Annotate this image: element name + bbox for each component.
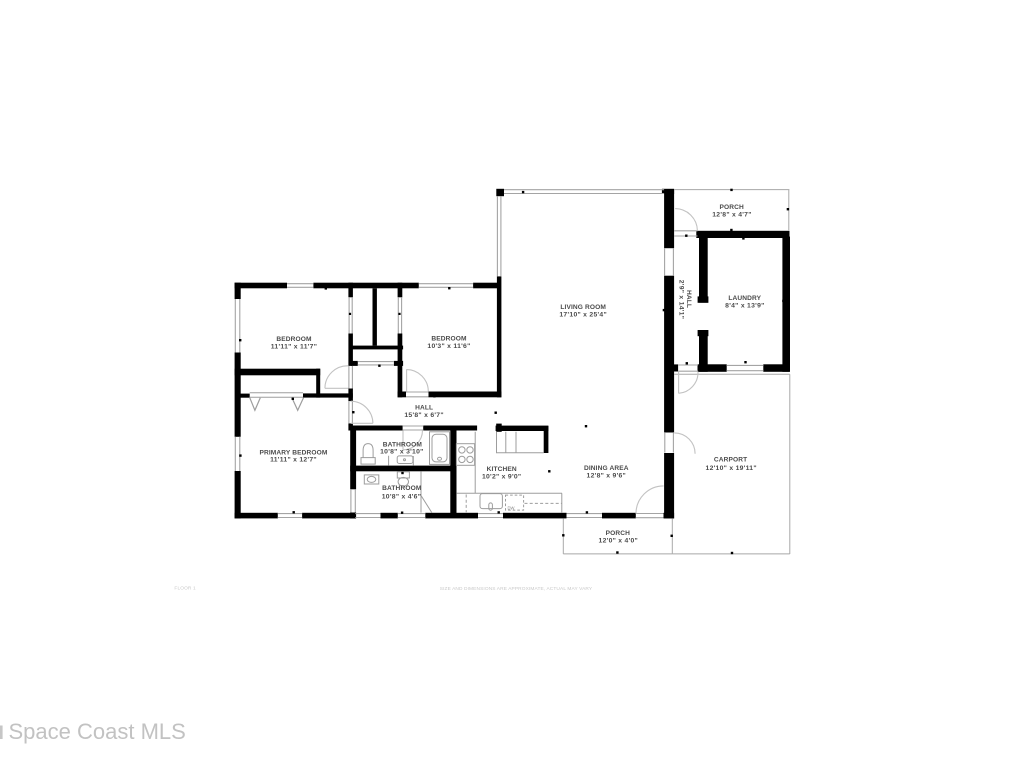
svg-text:8'4" x 13'9": 8'4" x 13'9": [725, 303, 765, 310]
svg-text:12'8" x 4'7": 12'8" x 4'7": [712, 211, 752, 218]
svg-text:BEDROOM: BEDROOM: [276, 336, 312, 343]
svg-text:HALL: HALL: [415, 404, 433, 411]
svg-text:SIZE AND DIMENSIONS ARE APPROX: SIZE AND DIMENSIONS ARE APPROXIMATE, ACT…: [440, 586, 593, 592]
svg-text:11'11" x 12'7": 11'11" x 12'7": [270, 457, 317, 464]
svg-text:10'2" x 9'0": 10'2" x 9'0": [482, 474, 522, 481]
svg-text:DINING AREA: DINING AREA: [584, 465, 629, 472]
svg-text:LIVING ROOM: LIVING ROOM: [560, 304, 606, 311]
svg-text:BATHROOM: BATHROOM: [383, 441, 423, 448]
svg-text:Space Coast MLS: Space Coast MLS: [9, 719, 186, 744]
svg-text:12'10" x 19'11": 12'10" x 19'11": [706, 465, 757, 472]
svg-text:PORCH: PORCH: [719, 204, 744, 211]
svg-text:2'9" x 14'1": 2'9" x 14'1": [677, 280, 684, 320]
svg-text:12'8" x 9'6": 12'8" x 9'6": [587, 472, 627, 479]
svg-text:BEDROOM: BEDROOM: [431, 336, 467, 343]
svg-text:KITCHEN: KITCHEN: [487, 466, 517, 473]
svg-text:11'11" x 11'7": 11'11" x 11'7": [271, 344, 318, 351]
svg-text:10'8" x 4'6": 10'8" x 4'6": [382, 494, 422, 501]
svg-text:PRIMARY BEDROOM: PRIMARY BEDROOM: [259, 449, 327, 456]
svg-text:LAUNDRY: LAUNDRY: [728, 295, 761, 302]
svg-text:12'0" x 4'0": 12'0" x 4'0": [599, 538, 639, 545]
svg-text:DW: DW: [508, 505, 515, 510]
svg-text:FLOOR 1: FLOOR 1: [174, 586, 196, 592]
svg-text:15'8" x 6'7": 15'8" x 6'7": [404, 412, 444, 419]
svg-text:BATHROOM: BATHROOM: [382, 485, 422, 492]
svg-text:HALL: HALL: [685, 290, 692, 308]
svg-text:10'3" x 11'6": 10'3" x 11'6": [427, 343, 470, 350]
svg-text:CARPORT: CARPORT: [714, 457, 747, 464]
svg-text:17'10" x 25'4": 17'10" x 25'4": [559, 312, 607, 319]
svg-text:PORCH: PORCH: [606, 530, 631, 537]
svg-text:10'8" x 3'10": 10'8" x 3'10": [380, 448, 424, 455]
